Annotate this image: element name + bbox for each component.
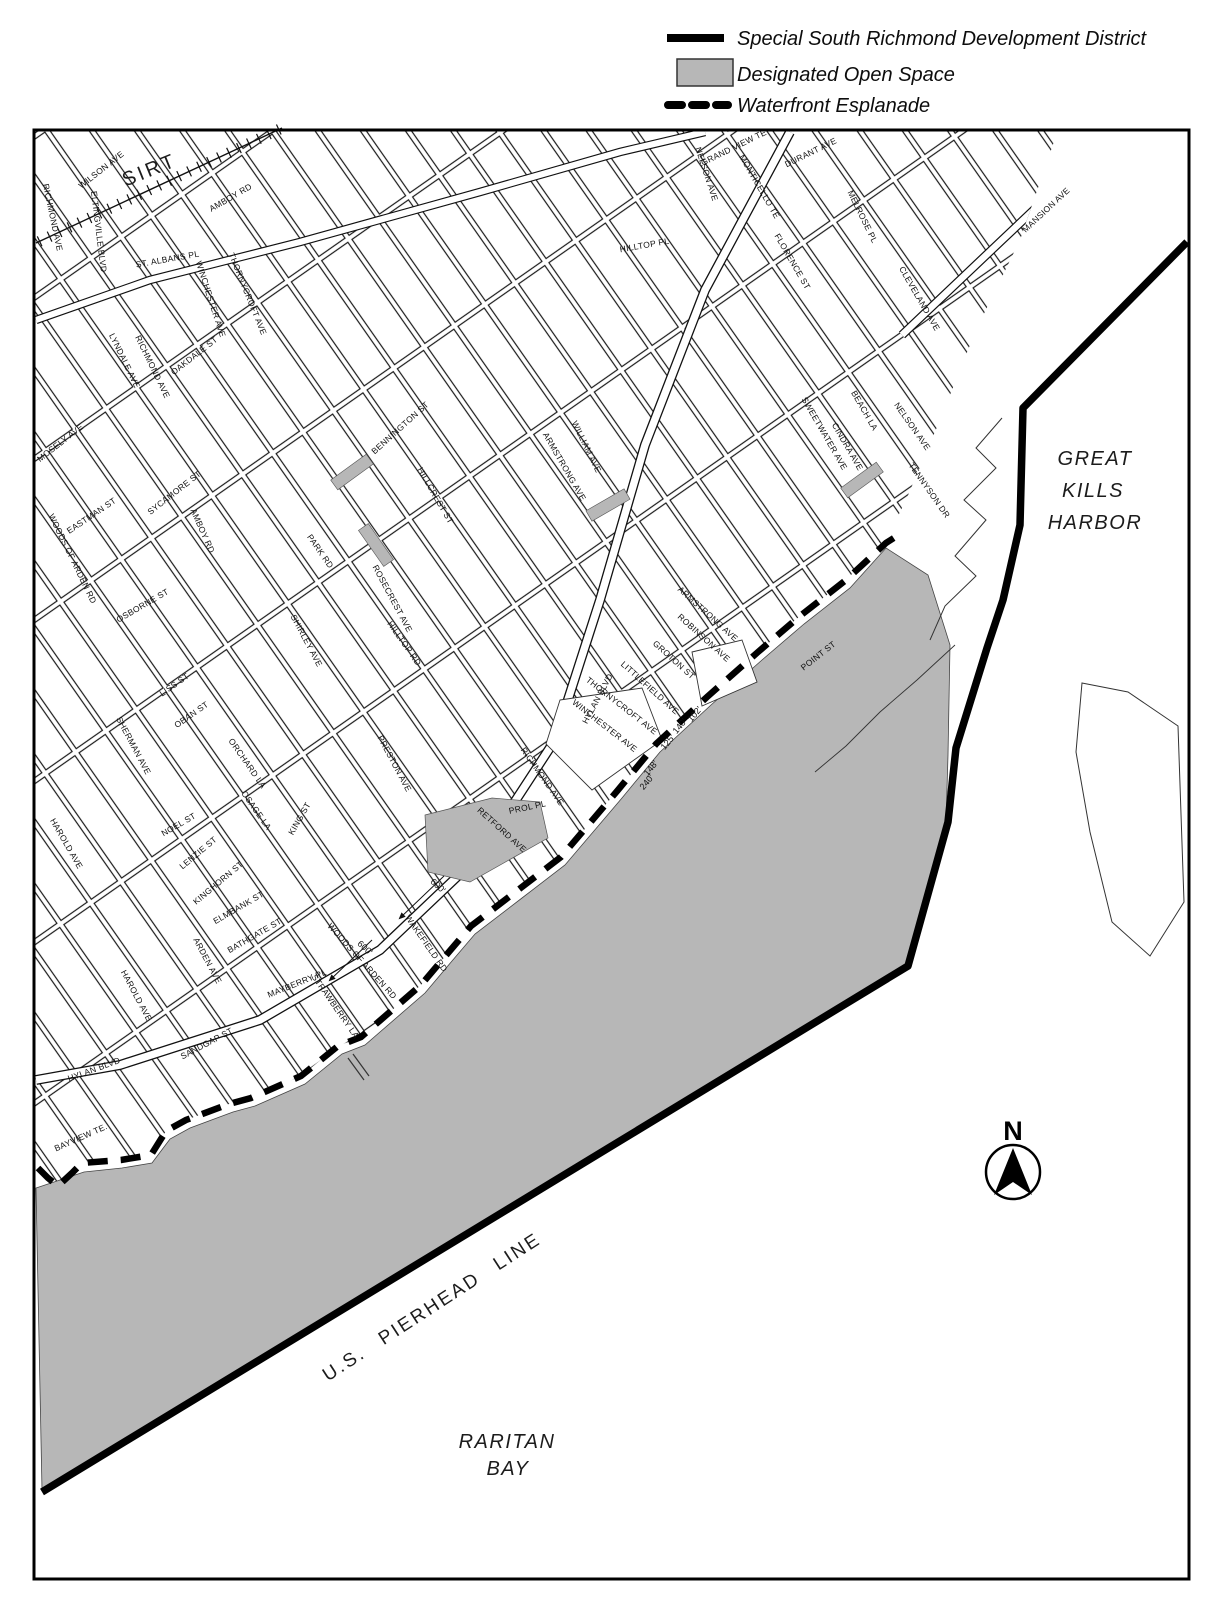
- bay-label-line2: BAY: [486, 1458, 529, 1480]
- harbor-label-line3: HARBOR: [1048, 512, 1143, 534]
- compass-n-label: N: [1003, 1116, 1023, 1146]
- legend-item-open-space: Designated Open Space: [677, 59, 955, 86]
- harbor-label-line1: GREAT: [1058, 448, 1133, 470]
- legend-item-esplanade: Waterfront Esplanade: [668, 95, 930, 117]
- harbor-docks: [930, 418, 1002, 640]
- street-label: TENNYSON DR: [907, 461, 953, 520]
- legend-label-esplanade: Waterfront Esplanade: [737, 95, 930, 117]
- legend-label-open-space: Designated Open Space: [737, 64, 955, 86]
- legend-label-district: Special South Richmond Development Distr…: [737, 28, 1148, 50]
- legend-item-district-boundary: Special South Richmond Development Distr…: [667, 28, 1148, 50]
- zoning-map: Special South Richmond Development Distr…: [0, 0, 1228, 1600]
- harbor-label-line2: KILLS: [1062, 480, 1124, 502]
- legend: Special South Richmond Development Distr…: [667, 28, 1148, 117]
- bay-label-line1: RARITAN: [459, 1431, 556, 1453]
- compass-rose: N: [986, 1116, 1040, 1199]
- legend-swatch-gray-fill: [677, 59, 733, 86]
- crookes-point-land: [1076, 683, 1184, 956]
